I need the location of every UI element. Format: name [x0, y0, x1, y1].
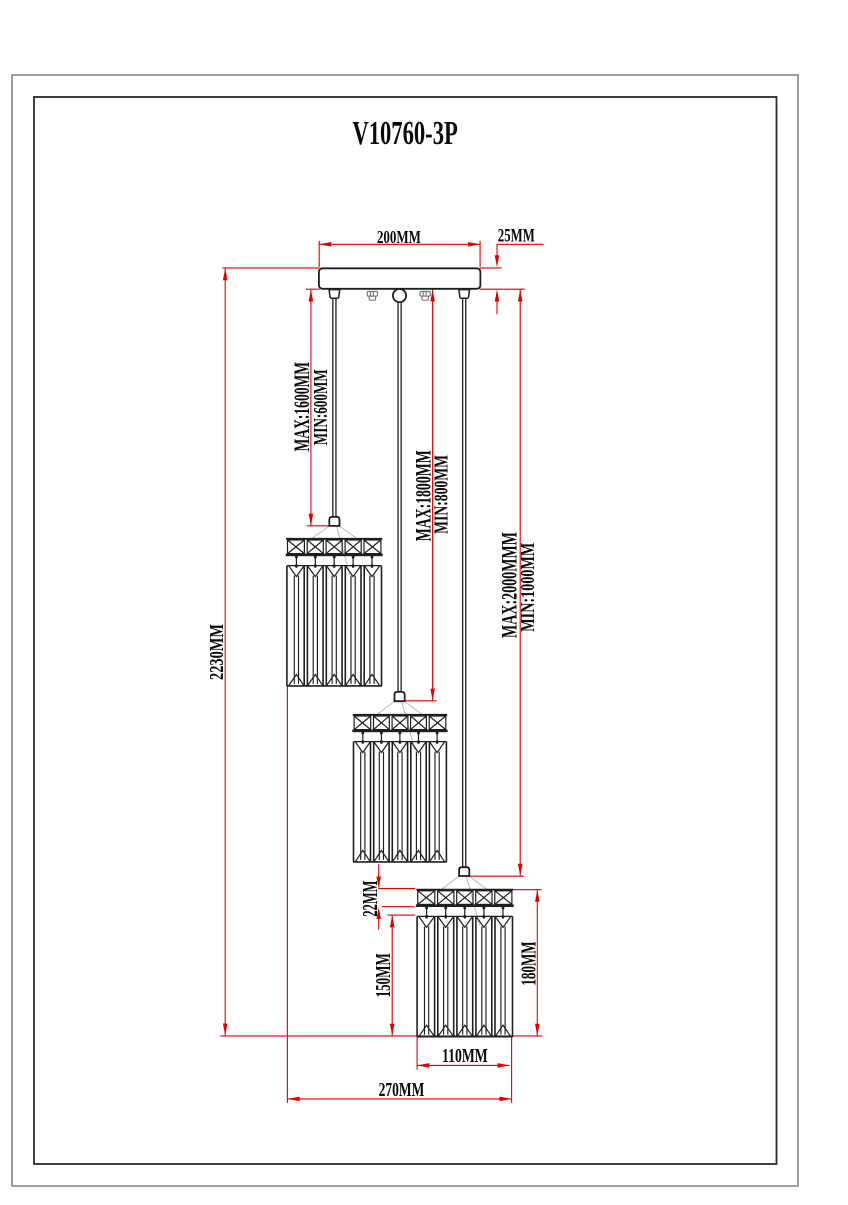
- svg-text:110MM: 110MM: [442, 1045, 488, 1067]
- svg-text:22MM: 22MM: [358, 881, 382, 917]
- svg-text:25MM: 25MM: [498, 227, 535, 247]
- svg-text:2230MM: 2230MM: [206, 624, 228, 680]
- svg-text:150MM: 150MM: [371, 953, 395, 997]
- svg-text:MIN:600MM: MIN:600MM: [310, 369, 332, 445]
- svg-text:V10760-3P: V10760-3P: [352, 115, 457, 152]
- svg-text:200MM: 200MM: [377, 227, 421, 247]
- svg-text:MIN:1000MM: MIN:1000MM: [517, 543, 539, 632]
- svg-text:MIN:800MM: MIN:800MM: [430, 455, 452, 534]
- svg-text:270MM: 270MM: [379, 1079, 425, 1101]
- svg-text:180MM: 180MM: [517, 941, 541, 985]
